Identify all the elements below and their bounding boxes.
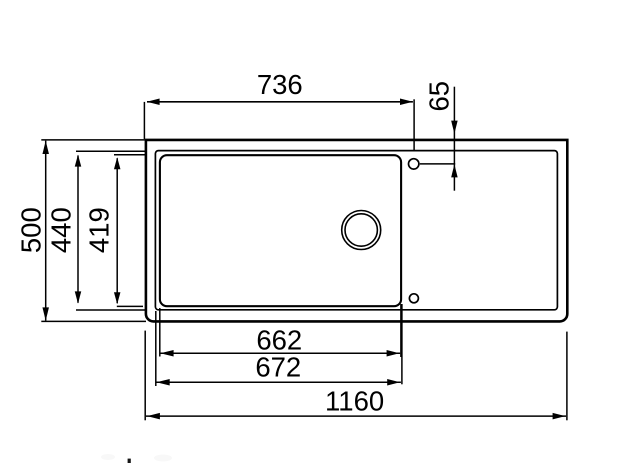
svg-text:500: 500 xyxy=(16,207,47,253)
svg-text:736: 736 xyxy=(257,69,303,100)
svg-text:65: 65 xyxy=(423,81,454,112)
svg-text:1160: 1160 xyxy=(325,385,384,416)
svg-text:440: 440 xyxy=(45,207,76,253)
svg-text:672: 672 xyxy=(255,351,301,382)
svg-text:419: 419 xyxy=(84,207,115,253)
